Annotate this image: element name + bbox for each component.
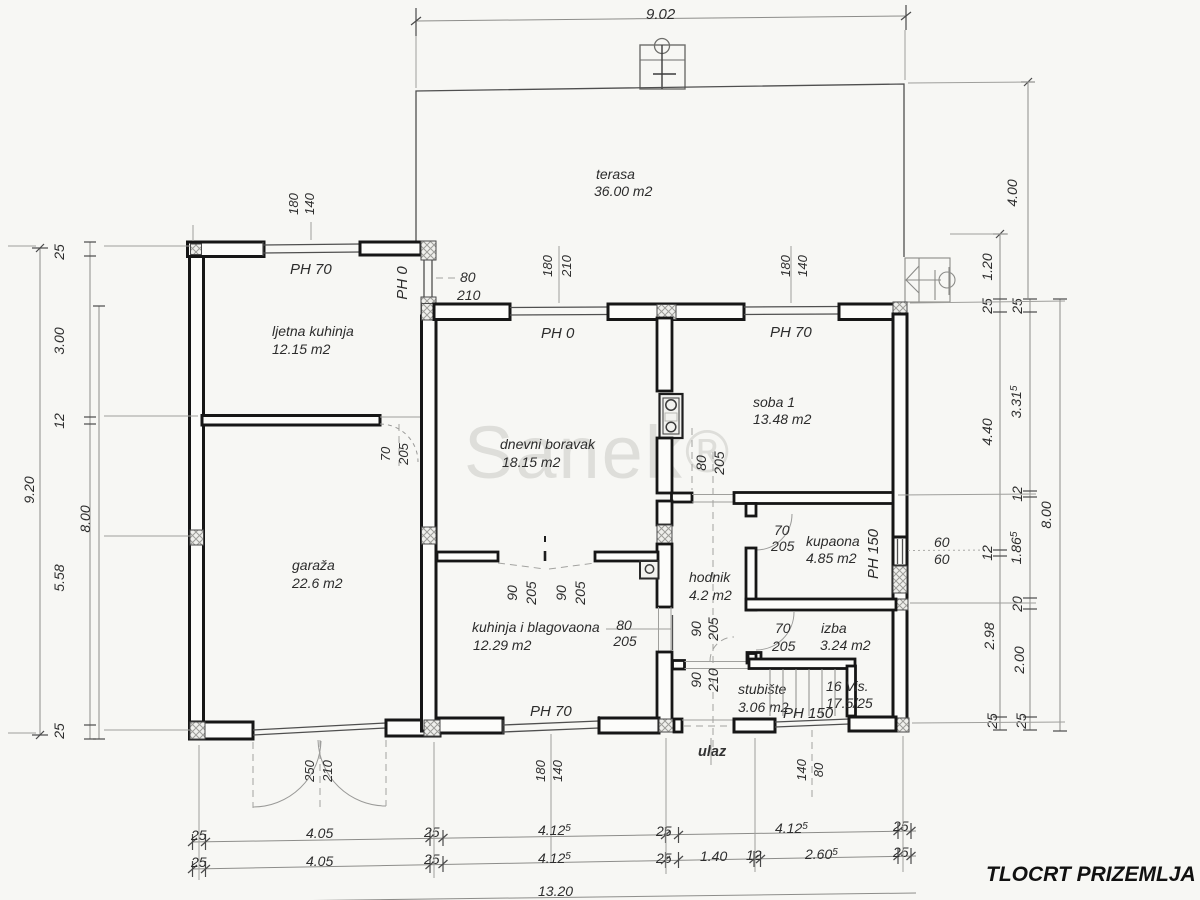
svg-text:25: 25 <box>51 723 67 740</box>
svg-text:80: 80 <box>693 455 709 471</box>
svg-text:140: 140 <box>795 254 810 276</box>
svg-text:1.40: 1.40 <box>700 848 727 864</box>
svg-text:25: 25 <box>1009 298 1025 315</box>
svg-text:25: 25 <box>423 851 440 867</box>
svg-text:4.125: 4.125 <box>538 822 571 838</box>
svg-text:180: 180 <box>778 254 793 276</box>
svg-text:PH 70: PH 70 <box>290 261 332 278</box>
svg-text:13.48 m2: 13.48 m2 <box>753 411 812 427</box>
svg-text:4.00: 4.00 <box>1004 179 1020 206</box>
svg-text:250: 250 <box>302 759 317 782</box>
svg-text:70: 70 <box>775 620 791 636</box>
svg-text:hodnik: hodnik <box>689 569 731 585</box>
svg-text:210: 210 <box>705 668 721 693</box>
svg-text:1.20: 1.20 <box>979 253 995 280</box>
svg-text:3.06 m2: 3.06 m2 <box>738 699 789 715</box>
svg-text:4.05: 4.05 <box>306 853 333 869</box>
svg-text:205: 205 <box>770 538 795 554</box>
svg-text:4.2 m2: 4.2 m2 <box>689 587 732 603</box>
svg-text:PH 0: PH 0 <box>541 325 575 342</box>
svg-text:90: 90 <box>688 672 704 688</box>
svg-text:TLOCRT PRIZEMLJA: TLOCRT PRIZEMLJA <box>986 863 1196 886</box>
svg-text:12: 12 <box>51 413 67 429</box>
svg-text:2.605: 2.605 <box>804 846 838 862</box>
svg-text:4.85 m2: 4.85 m2 <box>806 550 857 566</box>
svg-text:12: 12 <box>746 847 762 863</box>
svg-text:2.00: 2.00 <box>1011 646 1027 674</box>
svg-text:25: 25 <box>190 854 207 870</box>
svg-text:70: 70 <box>378 446 393 461</box>
svg-text:ljetna kuhinja: ljetna kuhinja <box>272 323 354 339</box>
svg-text:PH 0: PH 0 <box>394 266 411 300</box>
svg-text:70: 70 <box>774 522 790 538</box>
svg-text:25: 25 <box>1013 713 1029 730</box>
svg-text:205: 205 <box>523 581 539 606</box>
svg-text:25: 25 <box>892 844 909 860</box>
svg-text:60: 60 <box>934 534 950 550</box>
svg-text:soba 1: soba 1 <box>753 394 795 410</box>
svg-text:9.02: 9.02 <box>646 6 676 23</box>
svg-text:210: 210 <box>456 287 481 303</box>
svg-text:140: 140 <box>794 758 809 780</box>
svg-text:25: 25 <box>190 827 207 843</box>
svg-text:205: 205 <box>612 633 637 649</box>
svg-text:2.98: 2.98 <box>981 622 997 650</box>
svg-text:terasa: terasa <box>596 166 635 182</box>
svg-text:4.125: 4.125 <box>538 850 571 866</box>
svg-text:18.15 m2: 18.15 m2 <box>502 454 561 470</box>
svg-text:12.29 m2: 12.29 m2 <box>473 637 532 653</box>
svg-text:140: 140 <box>302 192 317 214</box>
svg-text:kuhinja i blagovaona: kuhinja i blagovaona <box>472 619 600 635</box>
svg-text:22.6 m2: 22.6 m2 <box>291 575 343 591</box>
svg-text:25: 25 <box>51 244 67 261</box>
svg-text:3.00: 3.00 <box>51 327 67 354</box>
svg-text:205: 205 <box>711 451 727 476</box>
svg-text:90: 90 <box>504 585 520 601</box>
svg-text:205: 205 <box>705 617 721 642</box>
svg-text:16 Vis.: 16 Vis. <box>826 678 869 694</box>
svg-text:180: 180 <box>540 254 555 276</box>
svg-text:PH 150: PH 150 <box>865 528 882 579</box>
svg-text:PH 70: PH 70 <box>770 324 812 341</box>
svg-text:kupaona: kupaona <box>806 533 860 549</box>
svg-text:PH 70: PH 70 <box>530 703 572 720</box>
svg-text:dnevni boravak: dnevni boravak <box>500 436 596 452</box>
svg-text:90: 90 <box>688 621 704 637</box>
svg-text:ulaz: ulaz <box>698 744 727 760</box>
svg-text:205: 205 <box>572 581 588 606</box>
svg-text:180: 180 <box>286 192 301 214</box>
svg-text:60: 60 <box>934 551 950 567</box>
svg-text:12.15 m2: 12.15 m2 <box>272 341 331 357</box>
svg-text:205: 205 <box>396 442 411 465</box>
svg-text:12: 12 <box>979 545 995 561</box>
svg-text:90: 90 <box>553 585 569 601</box>
svg-text:25: 25 <box>979 298 995 315</box>
svg-text:4.125: 4.125 <box>775 820 808 836</box>
svg-text:25: 25 <box>655 850 672 866</box>
svg-text:3.315: 3.315 <box>1008 385 1024 418</box>
svg-text:Sanek: Sanek <box>464 411 684 494</box>
svg-text:13.20: 13.20 <box>538 883 573 899</box>
svg-text:25: 25 <box>984 713 1000 730</box>
svg-text:1.865: 1.865 <box>1008 531 1024 564</box>
svg-text:izba: izba <box>821 620 847 636</box>
svg-text:25: 25 <box>655 823 672 839</box>
svg-text:4.40: 4.40 <box>979 418 995 445</box>
svg-text:3.24 m2: 3.24 m2 <box>820 637 871 653</box>
svg-text:9.20: 9.20 <box>21 476 37 503</box>
svg-text:5.58: 5.58 <box>51 564 67 591</box>
svg-text:PH 150: PH 150 <box>783 705 834 722</box>
svg-text:140: 140 <box>550 759 565 781</box>
svg-text:stubište: stubište <box>738 681 786 697</box>
svg-text:205: 205 <box>771 638 796 654</box>
svg-text:80: 80 <box>460 269 476 285</box>
svg-text:20: 20 <box>1009 596 1025 613</box>
svg-text:garaža: garaža <box>292 557 335 573</box>
svg-text:8.00: 8.00 <box>77 505 93 532</box>
svg-text:8.00: 8.00 <box>1038 501 1054 528</box>
svg-text:4.05: 4.05 <box>306 825 333 841</box>
svg-text:210: 210 <box>559 254 574 277</box>
svg-text:210: 210 <box>320 759 335 782</box>
svg-text:180: 180 <box>533 759 548 781</box>
svg-text:25: 25 <box>423 824 440 840</box>
svg-text:36.00 m2: 36.00 m2 <box>594 183 653 199</box>
svg-text:80: 80 <box>616 617 632 633</box>
svg-text:80: 80 <box>811 762 826 777</box>
svg-text:25: 25 <box>892 818 909 834</box>
